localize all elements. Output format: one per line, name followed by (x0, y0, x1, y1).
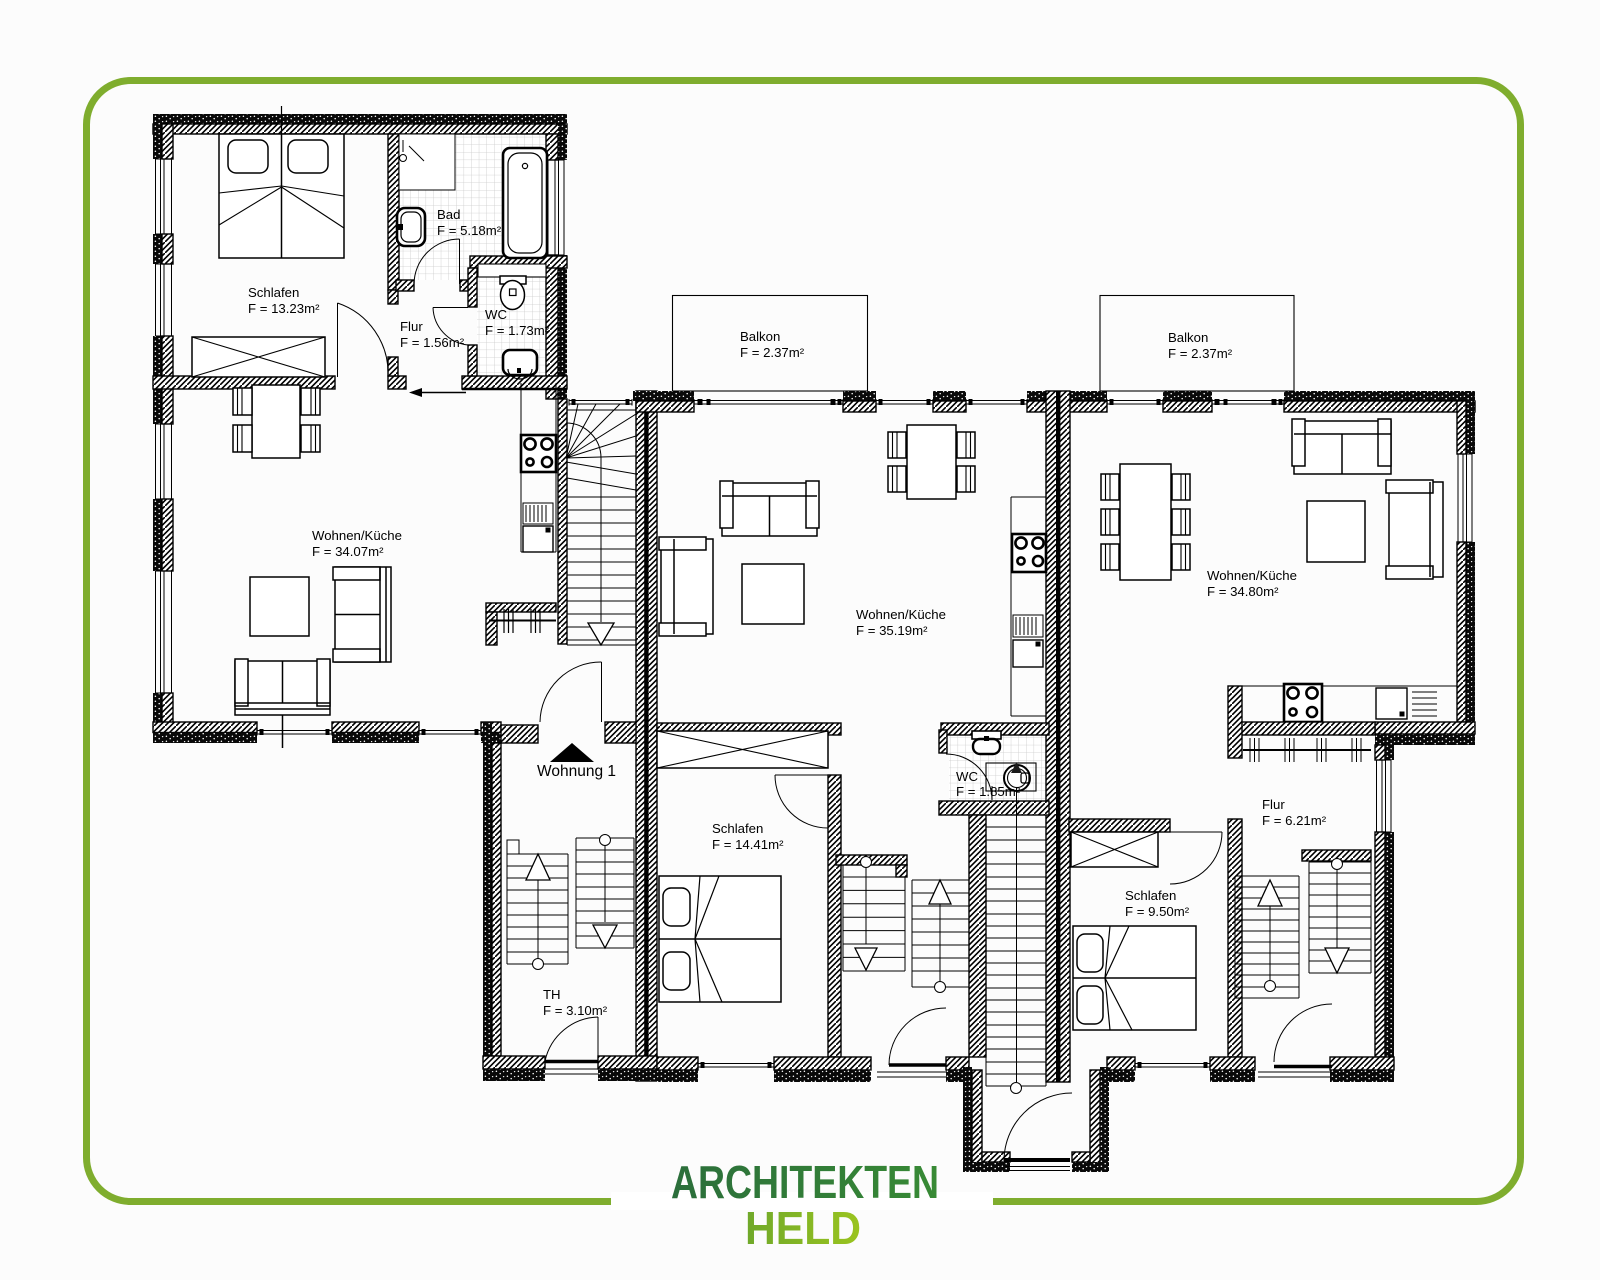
svg-text:F = 35.19m²: F = 35.19m² (856, 623, 928, 638)
svg-text:Wohnung 1: Wohnung 1 (537, 763, 616, 780)
svg-text:Bad: Bad (437, 207, 460, 222)
svg-text:WC: WC (485, 307, 507, 322)
svg-text:Wohnen/Küche: Wohnen/Küche (1207, 568, 1297, 583)
svg-text:F = 1.56m²: F = 1.56m² (400, 335, 465, 350)
svg-text:Schlafen: Schlafen (1125, 888, 1176, 903)
svg-text:TH: TH (543, 987, 561, 1002)
svg-text:F = 3.10m²: F = 3.10m² (543, 1003, 608, 1018)
svg-text:Wohnen/Küche: Wohnen/Küche (856, 607, 946, 622)
svg-text:F = 1.73m²: F = 1.73m² (485, 323, 550, 338)
svg-text:F = 34.07m²: F = 34.07m² (312, 544, 384, 559)
svg-text:Flur: Flur (400, 319, 423, 334)
svg-text:Flur: Flur (1262, 797, 1285, 812)
svg-text:F = 9.50m²: F = 9.50m² (1125, 904, 1190, 919)
svg-text:F = 34.80m²: F = 34.80m² (1207, 584, 1279, 599)
svg-text:Balkon: Balkon (740, 329, 780, 344)
svg-text:Wohnen/Küche: Wohnen/Küche (312, 528, 402, 543)
svg-text:WC: WC (956, 769, 978, 784)
svg-text:F = 6.21m²: F = 6.21m² (1262, 813, 1327, 828)
svg-text:F = 1.85m²: F = 1.85m² (956, 784, 1021, 799)
svg-text:F = 2.37m²: F = 2.37m² (1168, 346, 1233, 361)
svg-text:F = 13.23m²: F = 13.23m² (248, 301, 320, 316)
svg-text:Schlafen: Schlafen (712, 821, 763, 836)
svg-text:Schlafen: Schlafen (248, 285, 299, 300)
svg-text:Balkon: Balkon (1168, 330, 1208, 345)
svg-text:HELD: HELD (745, 1202, 861, 1254)
svg-text:ARCHITEKTEN: ARCHITEKTEN (671, 1156, 939, 1208)
svg-text:F = 2.37m²: F = 2.37m² (740, 345, 805, 360)
svg-text:F = 5.18m²: F = 5.18m² (437, 223, 502, 238)
svg-text:F = 14.41m²: F = 14.41m² (712, 837, 784, 852)
